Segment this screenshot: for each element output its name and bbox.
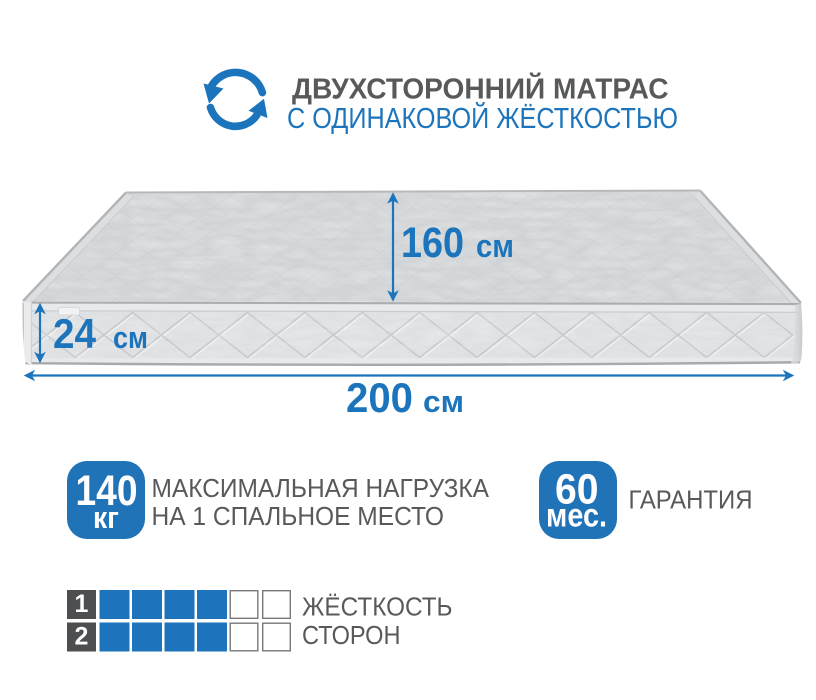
svg-text:мес.: мес. bbox=[546, 497, 607, 534]
svg-text:2: 2 bbox=[75, 623, 89, 651]
svg-text:ЖЁСТКОСТЬ: ЖЁСТКОСТЬ bbox=[302, 592, 453, 622]
svg-text:СТОРОН: СТОРОН bbox=[302, 620, 401, 650]
svg-text:ДВУХСТОРОННИЙ МАТРАС: ДВУХСТОРОННИЙ МАТРАС bbox=[292, 72, 669, 106]
svg-text:ГАРАНТИЯ: ГАРАНТИЯ bbox=[629, 487, 753, 515]
svg-text:МАКСИМАЛЬНАЯ НАГРУЗКА: МАКСИМАЛЬНАЯ НАГРУЗКА bbox=[152, 473, 490, 503]
svg-text:С ОДИНАКОВОЙ ЖЁСТКОСТЬЮ: С ОДИНАКОВОЙ ЖЁСТКОСТЬЮ bbox=[287, 101, 678, 135]
svg-text:200: 200 bbox=[346, 374, 413, 421]
svg-text:см: см bbox=[476, 228, 514, 264]
svg-text:НА 1 СПАЛЬНОЕ МЕСТО: НА 1 СПАЛЬНОЕ МЕСТО bbox=[152, 501, 445, 531]
svg-text:см: см bbox=[113, 320, 148, 355]
svg-text:24: 24 bbox=[53, 310, 96, 357]
svg-text:кг: кг bbox=[93, 500, 119, 535]
svg-text:см: см bbox=[423, 384, 464, 419]
svg-text:1: 1 bbox=[75, 590, 89, 618]
svg-text:160: 160 bbox=[401, 219, 464, 267]
